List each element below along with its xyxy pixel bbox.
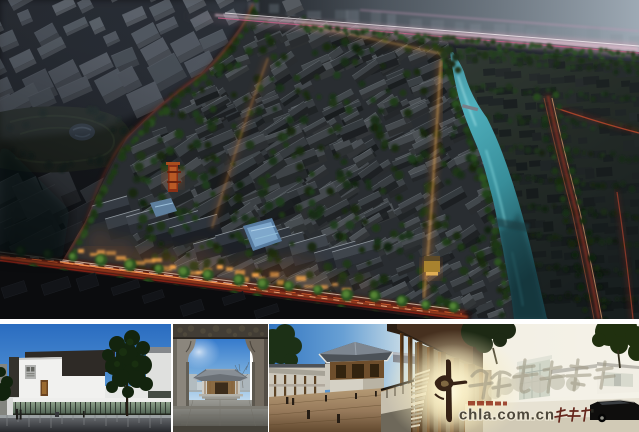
svg-text:chla.com.cn: chla.com.cn [459, 407, 554, 424]
